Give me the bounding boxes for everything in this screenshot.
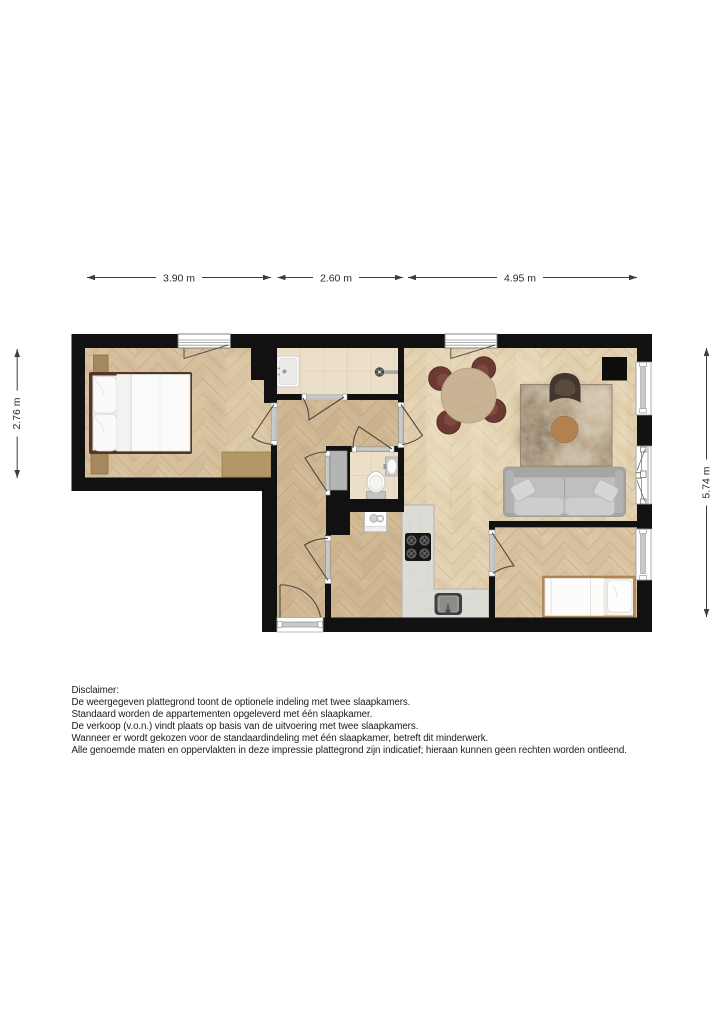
svg-text:3.90 m: 3.90 m [163,272,195,284]
svg-text:4.95 m: 4.95 m [504,272,536,284]
svg-text:2.76 m: 2.76 m [11,397,23,429]
svg-text:5.74 m: 5.74 m [700,466,712,498]
svg-text:2.60 m: 2.60 m [320,272,352,284]
